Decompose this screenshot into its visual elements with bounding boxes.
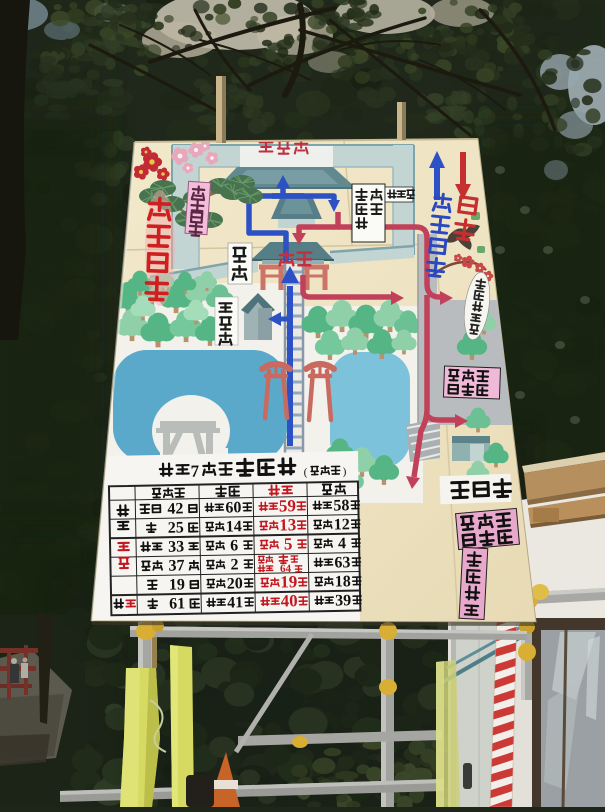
svg-text:20: 20 [227, 575, 243, 592]
svg-text:): ) [343, 466, 347, 478]
svg-text:61: 61 [169, 595, 185, 612]
svg-text:13: 13 [279, 515, 296, 534]
svg-text:33: 33 [168, 538, 184, 555]
svg-text:18: 18 [335, 573, 351, 590]
svg-text:14: 14 [226, 518, 242, 535]
svg-text:7: 7 [190, 462, 199, 481]
svg-text:4: 4 [338, 535, 346, 552]
svg-text:42: 42 [167, 500, 183, 517]
svg-text:(: ( [304, 466, 308, 478]
svg-text:41: 41 [227, 594, 243, 611]
svg-text:40: 40 [280, 591, 297, 610]
svg-text:2: 2 [230, 556, 238, 573]
svg-text:60: 60 [225, 499, 241, 516]
svg-text:12: 12 [334, 516, 350, 533]
svg-text:58: 58 [333, 497, 349, 514]
svg-text:19: 19 [169, 576, 185, 593]
svg-text:39: 39 [335, 592, 351, 609]
svg-text:25: 25 [168, 519, 184, 536]
svg-text:6: 6 [230, 537, 238, 554]
svg-text:59: 59 [279, 496, 296, 515]
svg-text:19: 19 [280, 572, 297, 591]
svg-text:37: 37 [168, 557, 184, 574]
svg-text:63: 63 [334, 554, 350, 571]
svg-text:5: 5 [284, 534, 293, 553]
